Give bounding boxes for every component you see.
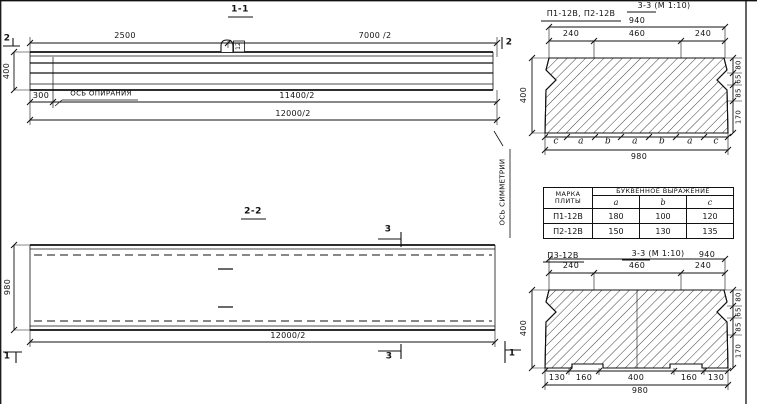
table-row: П1-12В 180 100 120 [544,209,734,224]
table-cell-mark-p1: П1-12В [544,209,593,224]
table-cell-p2-b: 130 [640,224,687,239]
table-cell-mark-p2: П2-12В [544,224,593,239]
cut-mark-3-bottom: 3 [386,353,393,362]
table-cell-p1-c: 120 [687,209,734,224]
dim-980-plan: 980 [4,279,12,295]
dim-65-top: 65 [736,74,743,84]
cut-mark-3-top: 3 [385,226,392,235]
dim-160-right: 160 [681,374,697,382]
dim-7000-2: 7000 /2 [359,32,392,40]
dim-240-bot-left: 240 [563,262,579,270]
dim-130-right: 130 [708,374,724,382]
letter-a-1: a [578,138,584,147]
dim-460-top: 460 [629,30,645,38]
table-cell-p2-c: 135 [687,224,734,239]
dim-65-bot: 65 [736,307,743,317]
letter-a-3: a [687,138,693,147]
dim-12000-2-elevation: 12000/2 [275,110,310,118]
dim-400-section-bottom: 400 [520,320,528,336]
dim-940-bottom: 940 [699,251,715,259]
drawing-sheet: 1-1 2500 7000 /2 12 2 2 400 300 ОСЬ ОПИР… [0,0,757,404]
dim-85-bot: 85 [736,322,743,332]
dim-80-top: 80 [736,60,743,70]
dim-170-top: 170 [736,110,743,124]
table-subcol-a: a [593,196,640,209]
dim-11400-2: 11400/2 [279,92,314,100]
table-subcol-b: b [640,196,687,209]
dim-130-left: 130 [549,374,565,382]
table-header-mark: МАРКА ПЛИТЫ [544,188,593,209]
view-2-2-title: 2-2 [244,208,262,217]
dim-160-left: 160 [576,374,592,382]
dim-80-bot: 80 [736,292,743,302]
plate-spec-table: МАРКА ПЛИТЫ БУКВЕННОЕ ВЫРАЖЕНИЕ a b c П1… [543,187,734,239]
dim-240-top-left: 240 [563,30,579,38]
letter-c-1: c [553,138,558,147]
letter-a-2: a [632,138,638,147]
dim-940-top: 940 [629,17,645,25]
cut-mark-2-right: 2 [506,39,513,48]
letter-b-2: b [659,138,665,147]
dim-400-bottom-row: 400 [628,374,644,382]
dim-12000-2-plan: 12000/2 [270,332,305,340]
section-bottom-title: 3-3 (М 1:10) [632,250,685,258]
cut-mark-2-left: 2 [4,35,11,44]
view-1-1-geometry [3,17,502,125]
dim-85-top: 85 [736,88,743,98]
table-cell-p1-a: 180 [593,209,640,224]
letter-c-2: c [713,138,718,147]
section-bottom-geometry [529,256,742,390]
plate-p3-label: П3-12В [547,252,578,260]
plates-label: П1-12В, П2-12В [547,10,616,18]
cut-mark-1-left: 1 [4,353,11,362]
dim-2500: 2500 [114,32,136,40]
table-cell-p2-a: 150 [593,224,640,239]
view-1-1-title: 1-1 [231,6,249,15]
dim-980-section-top: 980 [631,153,647,161]
letter-b-1: b [605,138,611,147]
dim-170-bot: 170 [736,344,743,358]
table-header-expression: БУКВЕННОЕ ВЫРАЖЕНИЕ [593,188,734,196]
dim-240-bot-right: 240 [695,262,711,270]
view-2-2-geometry [3,131,521,363]
lifting-loop-tag: 12 [236,42,242,50]
section-top-title: 3-3 (М 1:10) [638,2,691,10]
table-cell-p1-b: 100 [640,209,687,224]
dim-240-top-right: 240 [695,30,711,38]
dim-300: 300 [33,92,49,100]
dim-980-section-bottom: 980 [632,387,648,395]
dim-400-elevation: 400 [3,63,11,79]
dim-460-bot: 460 [629,262,645,270]
dim-400-section-top: 400 [520,87,528,103]
symmetry-axis-label: ОСЬ СИММЕТРИИ [500,159,507,226]
support-axis-label: ОСЬ ОПИРАНИЯ [70,91,131,98]
table-row: П2-12В 150 130 135 [544,224,734,239]
table-subcol-c: c [687,196,734,209]
cut-mark-1-right: 1 [509,350,516,359]
